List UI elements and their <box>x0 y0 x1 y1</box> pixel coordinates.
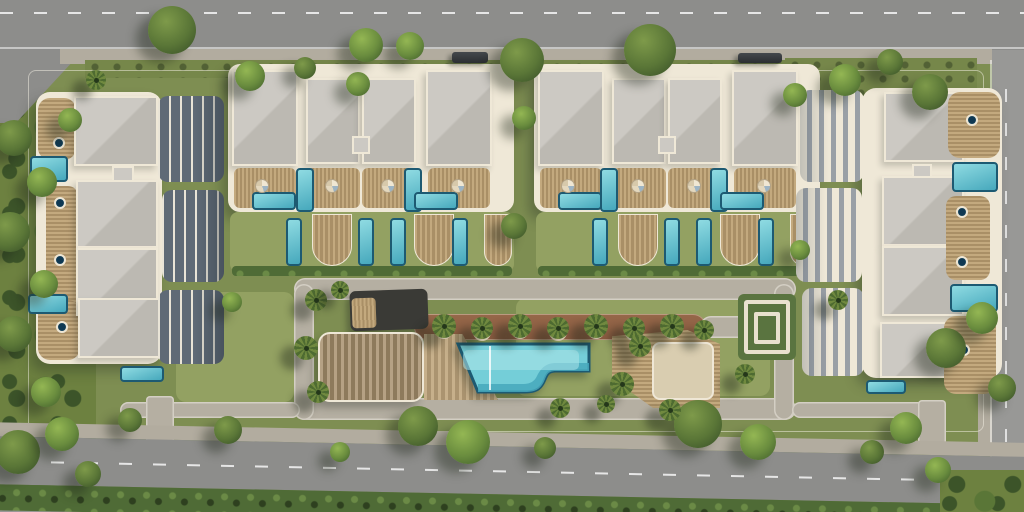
roof-parasol <box>381 179 395 193</box>
tree <box>790 240 810 260</box>
tree <box>988 374 1016 402</box>
palm-tree <box>508 314 532 338</box>
tree <box>75 461 101 487</box>
tree <box>534 437 556 459</box>
tree <box>214 416 242 444</box>
hot-tub <box>53 137 65 149</box>
tree <box>396 32 424 60</box>
tree <box>890 412 922 444</box>
cl-plate-pool-2 <box>414 192 458 210</box>
palm-tree <box>597 395 615 413</box>
cr-roof-1 <box>538 70 604 166</box>
cl-garden-fan-1 <box>312 214 352 266</box>
rt-lawn-pool <box>866 380 906 394</box>
roof-parasol <box>631 179 645 193</box>
tree <box>829 64 861 96</box>
tree <box>624 24 676 76</box>
cr-plate-pool-1 <box>558 192 602 210</box>
tree <box>500 38 544 82</box>
cl-garden-pool-1 <box>286 218 302 266</box>
tree <box>512 106 536 130</box>
parked-car <box>738 53 782 63</box>
tree <box>235 61 265 91</box>
tree <box>783 83 807 107</box>
palm-tree <box>307 381 329 403</box>
tree <box>860 440 884 464</box>
roof-parasol <box>757 179 771 193</box>
cl-roof-3 <box>362 78 416 164</box>
cr-garden-pool-1 <box>592 218 608 266</box>
tree <box>294 57 316 79</box>
parked-car <box>452 52 488 63</box>
palm-tree <box>86 70 106 90</box>
palm-tree <box>659 399 681 421</box>
cr-garden-pool-3 <box>696 218 712 266</box>
tree <box>148 6 196 54</box>
cl-roof-box <box>352 136 370 154</box>
tree <box>349 28 383 62</box>
palm-tree <box>547 317 569 339</box>
roof-parasol <box>687 179 701 193</box>
tree <box>346 72 370 96</box>
cr-roof-pool-1 <box>600 168 618 212</box>
tree <box>966 302 998 334</box>
palm-tree <box>331 281 349 299</box>
lt-lawn-pool <box>120 366 164 382</box>
roof-parasol <box>451 179 465 193</box>
tree <box>45 417 79 451</box>
roof-parasol <box>255 179 269 193</box>
tree <box>926 328 966 368</box>
driveway-east <box>918 400 946 446</box>
tree <box>31 377 61 407</box>
roof-parasol <box>325 179 339 193</box>
tree <box>674 400 722 448</box>
tree <box>912 74 948 110</box>
lt-terrace-2 <box>162 190 224 282</box>
cr-garden-fan-2 <box>720 214 760 266</box>
tree <box>30 270 58 298</box>
cl-garden-pool-3 <box>390 218 406 266</box>
lt-terrace-1 <box>158 96 224 182</box>
palm-tree <box>694 320 714 340</box>
cl-garden-pool-2 <box>358 218 374 266</box>
sand-lounge-pad <box>652 342 714 400</box>
cr-garden-hedge <box>538 266 818 276</box>
lt-roof-box-1 <box>112 166 134 182</box>
palm-tree <box>305 289 327 311</box>
tree <box>446 420 490 464</box>
tree <box>118 408 142 432</box>
cl-roof-4 <box>426 70 492 166</box>
lt-roof-2 <box>76 180 158 248</box>
hot-tub <box>956 256 968 268</box>
planter-maze-ring-inner <box>754 312 780 344</box>
hot-tub <box>54 254 66 266</box>
tree <box>740 424 776 460</box>
cr-roof-3 <box>668 78 722 164</box>
clubhouse-pergola <box>318 332 424 402</box>
palm-tree <box>660 314 684 338</box>
rt-deck-mid <box>946 196 990 280</box>
cl-plate-pool-1 <box>252 192 296 210</box>
palm-tree <box>471 317 493 339</box>
tree <box>222 292 242 312</box>
cr-roof-box <box>658 136 676 154</box>
cr-plate-pool-2 <box>720 192 764 210</box>
cl-garden-pool-4 <box>452 218 468 266</box>
palm-tree <box>584 314 608 338</box>
palm-tree <box>828 290 848 310</box>
lt-terrace-3 <box>158 290 224 364</box>
palm-tree <box>432 314 456 338</box>
cl-garden-fan-2 <box>414 214 454 266</box>
scrub-corner-se <box>940 470 1024 512</box>
tree <box>398 406 438 446</box>
cl-roof-pool-1 <box>296 168 314 212</box>
cr-garden-fan-1 <box>618 214 658 266</box>
cl-garden-hedge <box>232 266 512 276</box>
rt-roof-box-1 <box>912 164 932 178</box>
hot-tub <box>56 321 68 333</box>
palm-tree <box>294 336 318 360</box>
tree <box>925 457 951 483</box>
cr-garden-pool-2 <box>664 218 680 266</box>
palm-tree <box>610 372 634 396</box>
lt-roof-1 <box>74 96 158 166</box>
lt-roof-4 <box>78 298 160 358</box>
tree <box>877 49 903 75</box>
hot-tub <box>966 114 978 126</box>
palm-tree <box>550 398 570 418</box>
rt-pool-1 <box>952 162 998 192</box>
amphitheater-steps <box>351 298 376 329</box>
tree <box>27 167 57 197</box>
site-plan-render <box>0 0 1024 512</box>
palm-tree <box>735 364 755 384</box>
palm-tree <box>629 335 651 357</box>
tree <box>330 442 350 462</box>
tree <box>58 108 82 132</box>
hot-tub <box>956 206 968 218</box>
cr-garden-pool-4 <box>758 218 774 266</box>
roof-parasol <box>561 179 575 193</box>
hot-tub <box>54 197 66 209</box>
rt-terrace-2 <box>796 188 862 282</box>
tree <box>501 213 527 239</box>
rt-terrace-1 <box>800 90 864 182</box>
